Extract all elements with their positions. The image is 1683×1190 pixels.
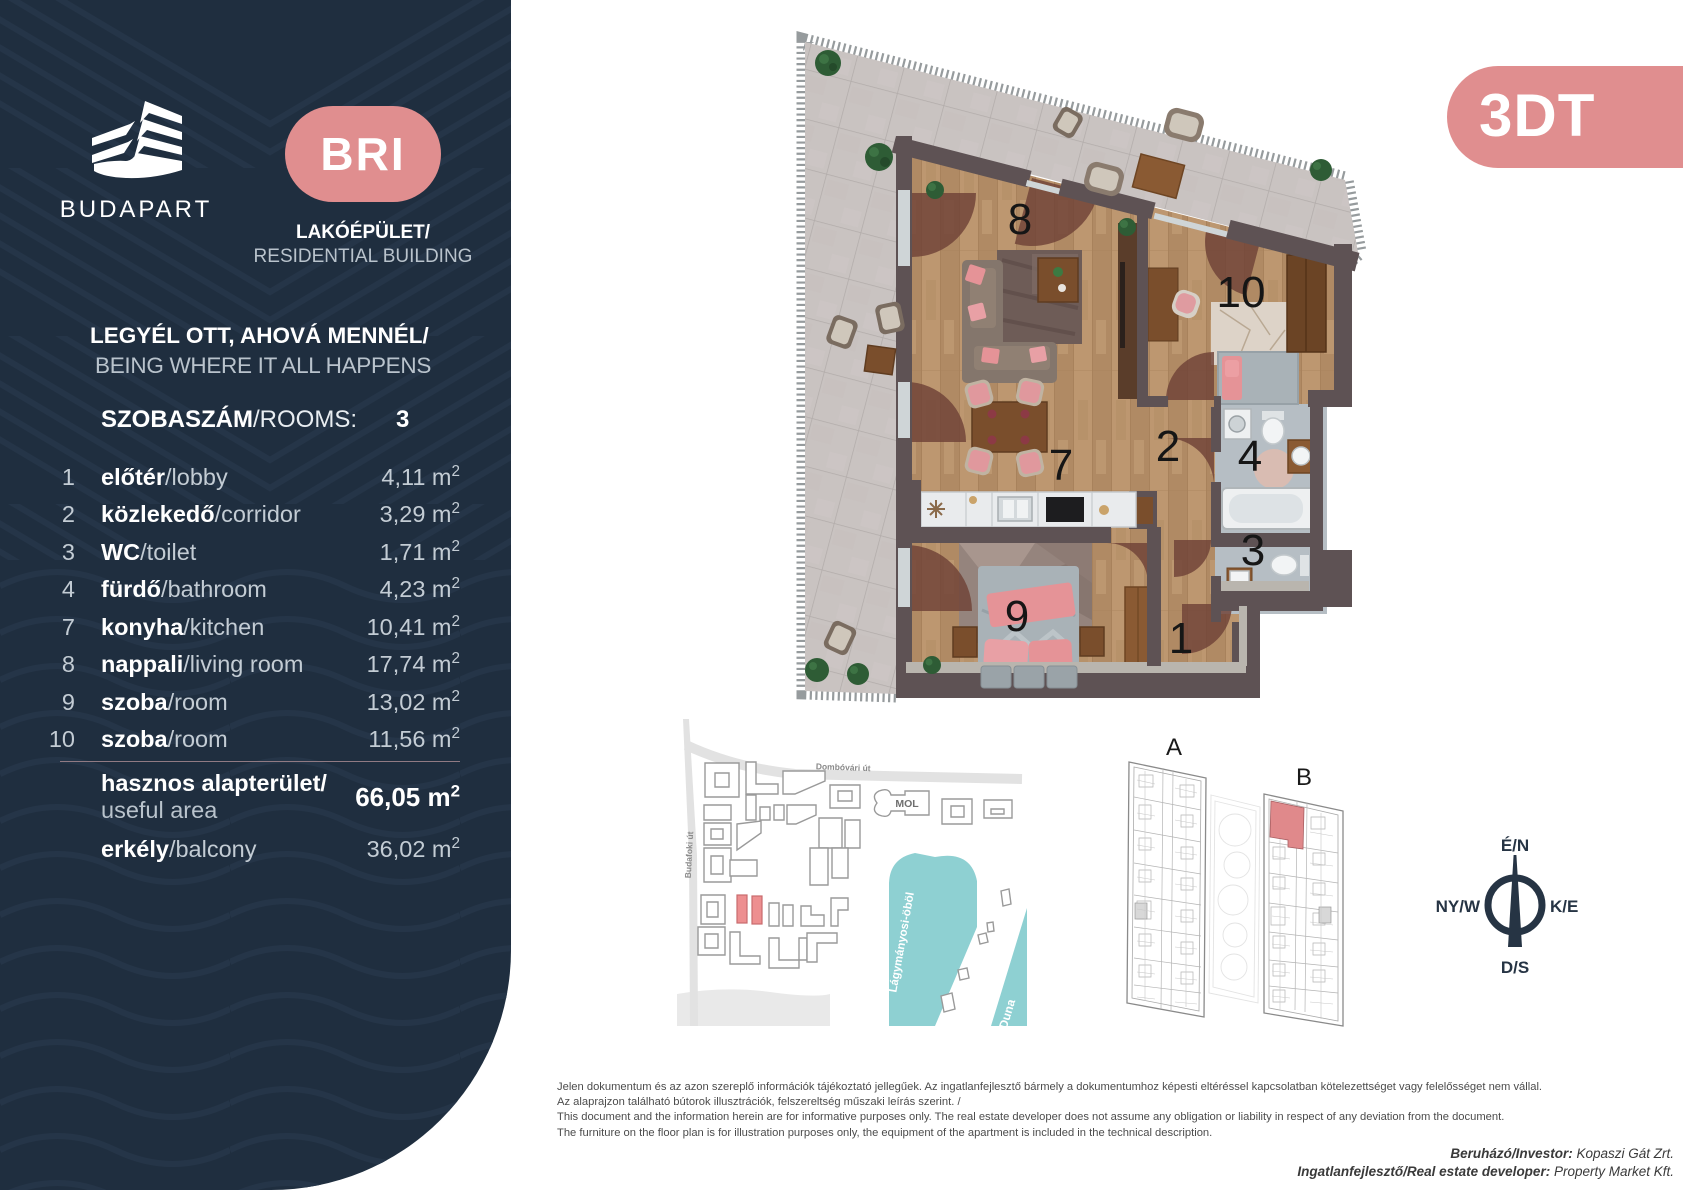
svg-text:NY/W: NY/W: [1436, 897, 1481, 916]
svg-text:10: 10: [1217, 268, 1266, 317]
svg-text:8: 8: [1008, 195, 1032, 244]
svg-text:B: B: [1296, 764, 1312, 791]
svg-text:3: 3: [1241, 526, 1265, 575]
svg-text:4: 4: [1238, 432, 1262, 481]
svg-text:É/N: É/N: [1501, 836, 1529, 855]
svg-text:7: 7: [1049, 441, 1073, 490]
svg-text:MOL: MOL: [895, 798, 919, 810]
svg-text:9: 9: [1005, 592, 1029, 641]
svg-text:D/S: D/S: [1501, 958, 1529, 977]
svg-text:A: A: [1166, 735, 1182, 761]
svg-text:K/E: K/E: [1550, 897, 1578, 916]
svg-text:1: 1: [1169, 614, 1193, 663]
svg-text:2: 2: [1156, 422, 1180, 471]
